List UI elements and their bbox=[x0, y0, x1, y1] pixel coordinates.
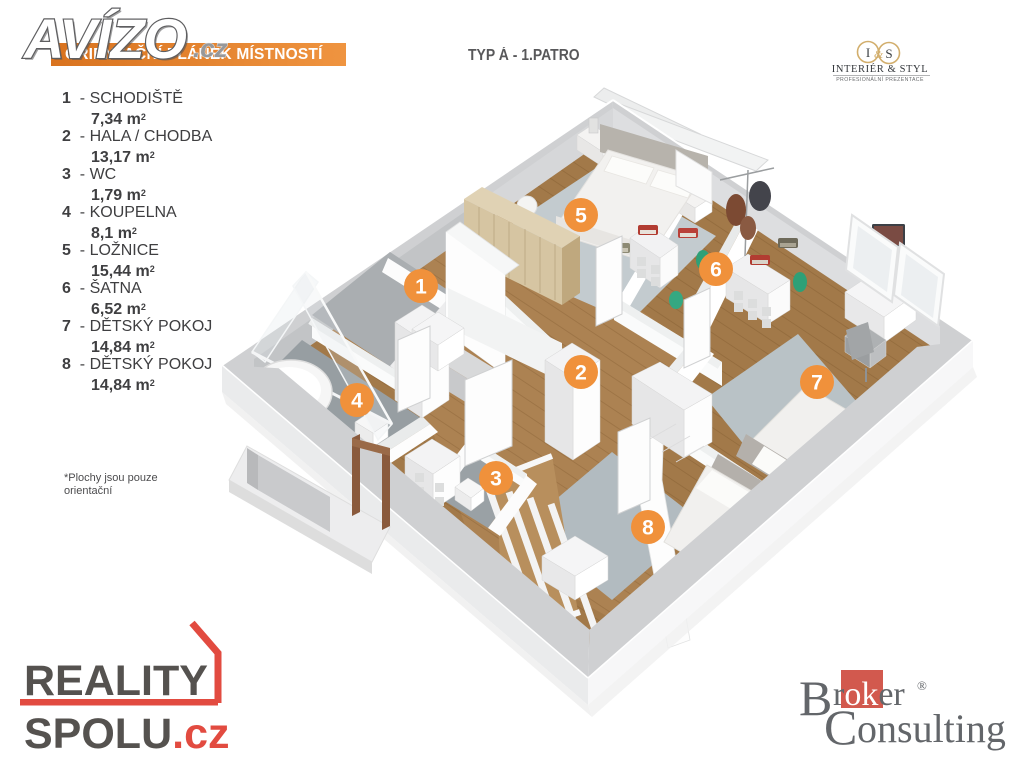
svg-text:C: C bbox=[824, 699, 857, 755]
svg-text:REALITY: REALITY bbox=[24, 657, 208, 705]
svg-text:&: & bbox=[874, 47, 884, 61]
svg-text:PROFESIONÁLNÍ PREZENTACE: PROFESIONÁLNÍ PREZENTACE bbox=[836, 76, 924, 83]
svg-text:8: 8 bbox=[642, 517, 654, 540]
svg-text:AVÍZO: AVÍZO bbox=[22, 7, 186, 70]
svg-text:2: 2 bbox=[575, 362, 587, 385]
svg-text:.cz: .cz bbox=[193, 33, 228, 63]
svg-text:S: S bbox=[885, 46, 892, 61]
svg-text:®: ® bbox=[917, 678, 927, 693]
svg-text:I: I bbox=[866, 45, 870, 60]
svg-text:5: 5 bbox=[575, 205, 587, 228]
svg-text:1: 1 bbox=[415, 276, 427, 299]
svg-text:4: 4 bbox=[351, 390, 363, 413]
svg-text:SPOLU.cz: SPOLU.cz bbox=[24, 710, 230, 758]
svg-text:3: 3 bbox=[490, 468, 502, 491]
svg-text:7: 7 bbox=[811, 372, 823, 395]
svg-text:INTERIÉR & STYL: INTERIÉR & STYL bbox=[832, 63, 929, 75]
svg-text:onsulting: onsulting bbox=[857, 706, 1006, 751]
svg-text:6: 6 bbox=[710, 259, 722, 282]
